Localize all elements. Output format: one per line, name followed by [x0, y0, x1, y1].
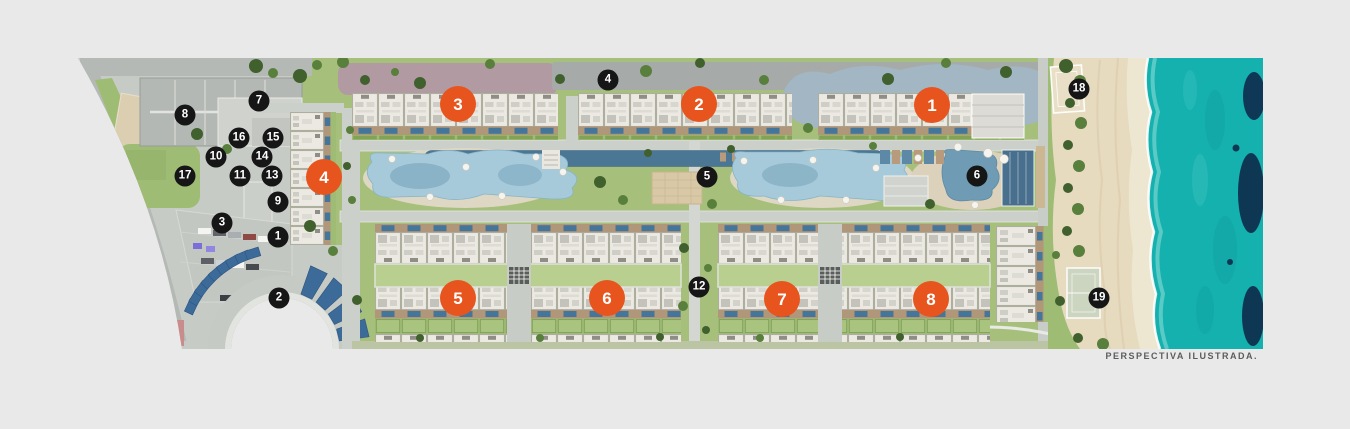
annex-block	[996, 226, 1048, 322]
car	[213, 230, 226, 236]
site-plan-illustration: 1234567812345678910111213141516171819 PE…	[0, 0, 1350, 429]
tennis-court	[1067, 268, 1100, 318]
plan-caption: PERSPECTIVA ILUSTRADA.	[1105, 351, 1258, 361]
site-plan-artwork	[0, 0, 1350, 429]
car	[246, 264, 259, 270]
building-row-north	[352, 93, 1024, 140]
pool-east	[942, 150, 999, 201]
screenshot-canvas: 1234567812345678910111213141516171819 PE…	[0, 0, 1350, 429]
car	[243, 234, 256, 240]
car	[198, 228, 211, 234]
pool-pavilion	[884, 176, 928, 206]
courtyard-east	[718, 264, 990, 287]
lounger-deck	[1036, 146, 1045, 208]
sea	[1146, 58, 1265, 349]
car	[258, 236, 271, 242]
car	[201, 258, 214, 264]
car	[228, 232, 241, 238]
